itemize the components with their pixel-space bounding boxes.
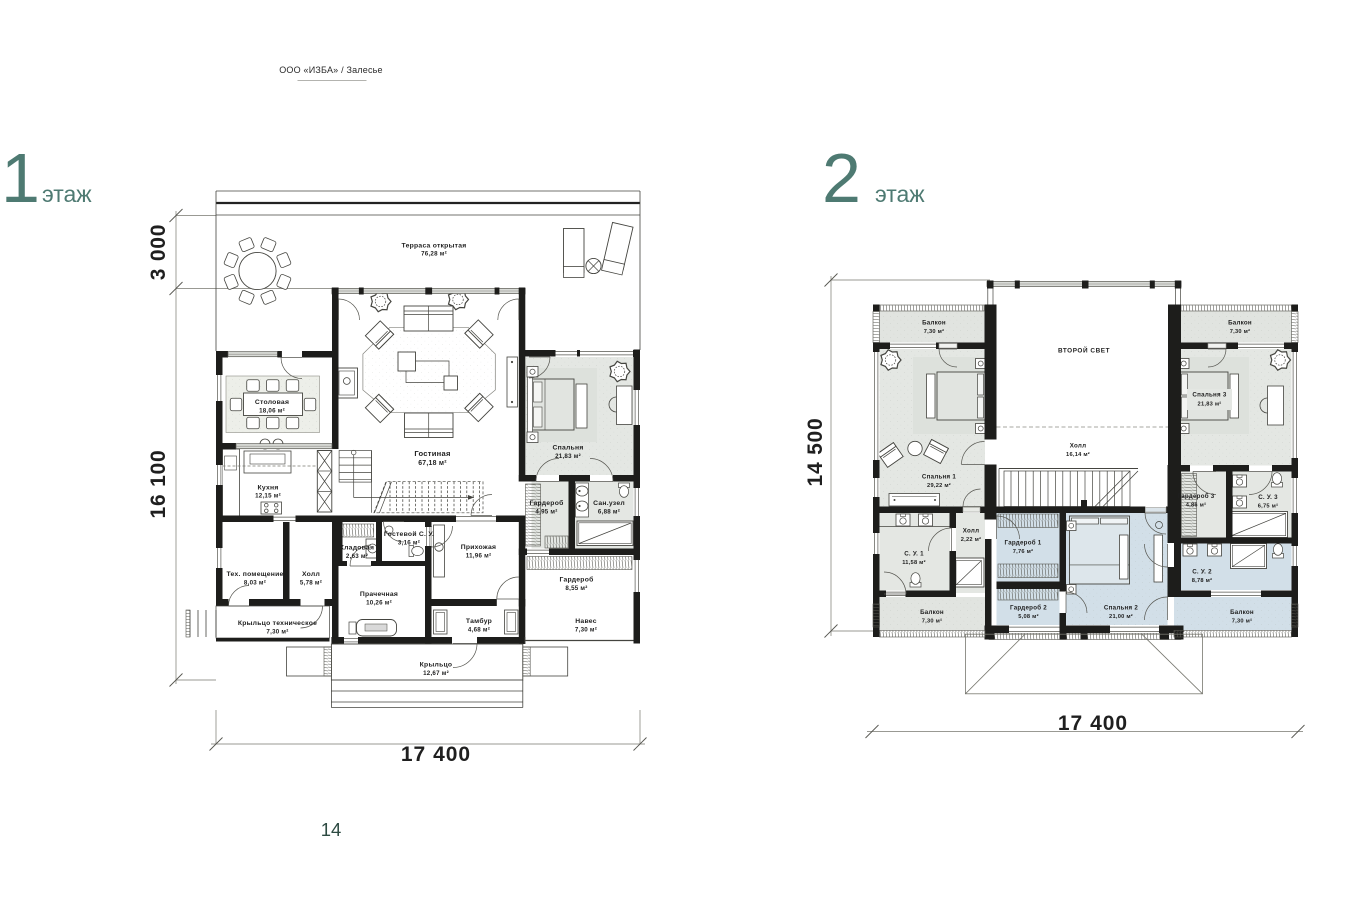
svg-text:Холл: Холл bbox=[302, 571, 320, 578]
svg-text:6,75 м²: 6,75 м² bbox=[1258, 502, 1279, 509]
svg-text:Спальня: Спальня bbox=[552, 445, 583, 452]
svg-text:Прихожая: Прихожая bbox=[461, 544, 497, 551]
svg-text:17 400: 17 400 bbox=[401, 743, 471, 766]
svg-text:Холл: Холл bbox=[963, 528, 980, 535]
svg-text:21,83 м²: 21,83 м² bbox=[555, 453, 581, 460]
svg-text:8,03 м²: 8,03 м² bbox=[244, 579, 266, 586]
svg-text:14 500: 14 500 bbox=[804, 417, 827, 486]
svg-text:Спальня 3: Спальня 3 bbox=[1192, 392, 1226, 399]
svg-text:Кладовая: Кладовая bbox=[340, 545, 375, 552]
svg-text:Гостевой С. У.: Гостевой С. У. bbox=[384, 530, 434, 538]
svg-text:2,22 м²: 2,22 м² bbox=[961, 536, 982, 543]
svg-text:8,78 м²: 8,78 м² bbox=[1192, 577, 1213, 584]
svg-text:7,76 м²: 7,76 м² bbox=[1013, 548, 1034, 555]
svg-text:Гардероб 1: Гардероб 1 bbox=[1005, 540, 1042, 547]
svg-text:Гардероб 2: Гардероб 2 bbox=[1010, 605, 1047, 612]
svg-text:Балкон: Балкон bbox=[1228, 320, 1252, 327]
svg-text:12,67 м²: 12,67 м² bbox=[423, 670, 449, 677]
svg-text:Прачечная: Прачечная bbox=[360, 591, 398, 598]
svg-text:7,30 м²: 7,30 м² bbox=[266, 628, 288, 635]
svg-text:Гардероб: Гардероб bbox=[559, 576, 593, 584]
svg-text:21,83 м²: 21,83 м² bbox=[1198, 401, 1222, 408]
svg-text:Крыльцо техническое: Крыльцо техническое bbox=[238, 620, 317, 627]
svg-text:ООО «ИЗБА» / Залесье: ООО «ИЗБА» / Залесье bbox=[279, 65, 383, 75]
svg-text:7,30 м²: 7,30 м² bbox=[1232, 617, 1253, 624]
svg-text:Столовая: Столовая bbox=[255, 399, 289, 406]
svg-text:Тех. помещение: Тех. помещение bbox=[226, 571, 283, 578]
svg-text:Балкон: Балкон bbox=[1230, 609, 1254, 616]
svg-text:17 400: 17 400 bbox=[1058, 712, 1128, 735]
svg-text:18,06 м²: 18,06 м² bbox=[259, 407, 285, 414]
svg-text:Спальня 2: Спальня 2 bbox=[1104, 605, 1138, 612]
svg-text:4,68 м²: 4,68 м² bbox=[468, 626, 490, 633]
svg-text:7,30 м²: 7,30 м² bbox=[922, 617, 943, 624]
svg-text:Балкон: Балкон bbox=[920, 609, 944, 616]
svg-text:Терраса открытая: Терраса открытая bbox=[402, 243, 467, 250]
svg-text:29,22 м²: 29,22 м² bbox=[927, 482, 951, 489]
svg-text:76,28 м²: 76,28 м² bbox=[421, 251, 447, 258]
svg-text:11,96 м²: 11,96 м² bbox=[466, 552, 492, 559]
svg-text:С. У. 1: С. У. 1 bbox=[904, 551, 924, 558]
svg-text:2: 2 bbox=[822, 139, 861, 217]
svg-text:Балкон: Балкон bbox=[922, 320, 946, 327]
svg-text:3 000: 3 000 bbox=[147, 224, 170, 281]
svg-text:этаж: этаж bbox=[42, 181, 92, 207]
svg-text:16 100: 16 100 bbox=[147, 449, 170, 518]
svg-text:1: 1 bbox=[1, 139, 40, 217]
svg-text:7,30 м²: 7,30 м² bbox=[924, 328, 945, 335]
svg-text:Гардероб: Гардероб bbox=[529, 499, 563, 507]
svg-text:14: 14 bbox=[321, 819, 342, 840]
svg-text:Гардероб 3: Гардероб 3 bbox=[1178, 493, 1215, 500]
svg-text:21,00 м²: 21,00 м² bbox=[1109, 613, 1133, 620]
svg-text:Сан.узел: Сан.узел bbox=[593, 500, 625, 507]
svg-text:Тамбур: Тамбур bbox=[466, 617, 492, 625]
svg-text:8,55 м²: 8,55 м² bbox=[565, 585, 587, 592]
svg-text:Холл: Холл bbox=[1070, 443, 1087, 450]
svg-text:4,95 м²: 4,95 м² bbox=[535, 508, 557, 515]
svg-text:С. У. 2: С. У. 2 bbox=[1192, 569, 1212, 576]
svg-text:этаж: этаж bbox=[875, 181, 925, 207]
svg-text:5,08 м²: 5,08 м² bbox=[1018, 613, 1039, 620]
svg-text:10,26 м²: 10,26 м² bbox=[366, 599, 392, 606]
svg-text:Кухня: Кухня bbox=[257, 485, 278, 492]
svg-text:3,16 м²: 3,16 м² bbox=[398, 539, 420, 546]
svg-text:11,58 м²: 11,58 м² bbox=[902, 559, 926, 566]
svg-text:7,30 м²: 7,30 м² bbox=[575, 626, 597, 633]
svg-text:Спальня 1: Спальня 1 bbox=[922, 474, 956, 481]
svg-text:ВТОРОЙ СВЕТ: ВТОРОЙ СВЕТ bbox=[1058, 346, 1110, 355]
svg-text:Гостиная: Гостиная bbox=[414, 449, 450, 458]
svg-text:16,14 м²: 16,14 м² bbox=[1066, 451, 1090, 458]
svg-text:2,63 м²: 2,63 м² bbox=[346, 553, 368, 560]
svg-text:6,88 м²: 6,88 м² bbox=[598, 508, 620, 515]
svg-text:Крыльцо: Крыльцо bbox=[420, 662, 453, 669]
svg-text:С. У. 3: С. У. 3 bbox=[1258, 494, 1278, 501]
svg-text:7,30 м²: 7,30 м² bbox=[1230, 328, 1251, 335]
svg-text:Навес: Навес bbox=[575, 618, 597, 625]
svg-text:4,86 м²: 4,86 м² bbox=[1186, 501, 1207, 508]
svg-text:12,15 м²: 12,15 м² bbox=[255, 493, 281, 500]
svg-text:67,18 м²: 67,18 м² bbox=[418, 460, 447, 467]
svg-text:5,78 м²: 5,78 м² bbox=[300, 579, 322, 586]
